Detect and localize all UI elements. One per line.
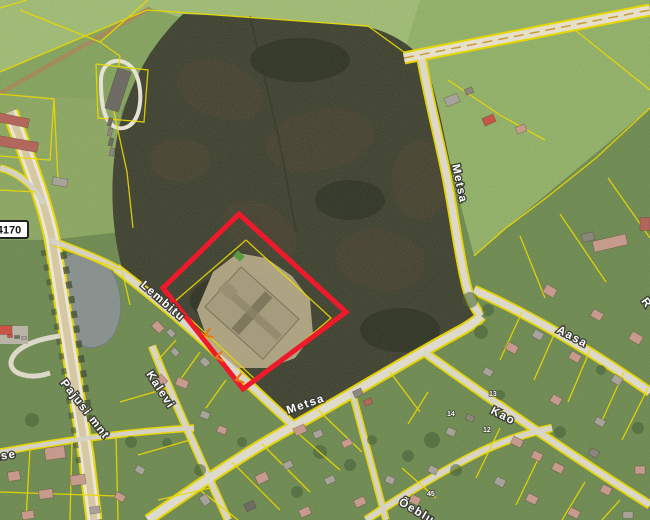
house-number: 45	[427, 491, 435, 498]
building	[70, 474, 86, 486]
building	[8, 335, 13, 338]
building	[44, 446, 65, 461]
house-number: 13	[489, 391, 497, 398]
building	[635, 466, 645, 474]
building	[22, 337, 27, 340]
aerial-map[interactable]: Lembitu Kalevi Metsa Metsa Aasa Pajusi m…	[0, 0, 650, 520]
building	[640, 218, 650, 231]
building	[15, 336, 20, 339]
house-number: 14	[447, 411, 455, 418]
building	[0, 326, 12, 335]
building	[38, 489, 53, 500]
building	[90, 506, 101, 514]
road-number-badge: 4170	[0, 221, 28, 238]
road-number-text: 4170	[0, 225, 21, 237]
building	[7, 471, 20, 482]
house-number: 12	[483, 427, 491, 434]
building	[22, 510, 35, 520]
building	[623, 512, 633, 519]
map-viewport[interactable]: Lembitu Kalevi Metsa Metsa Aasa Pajusi m…	[0, 0, 650, 520]
